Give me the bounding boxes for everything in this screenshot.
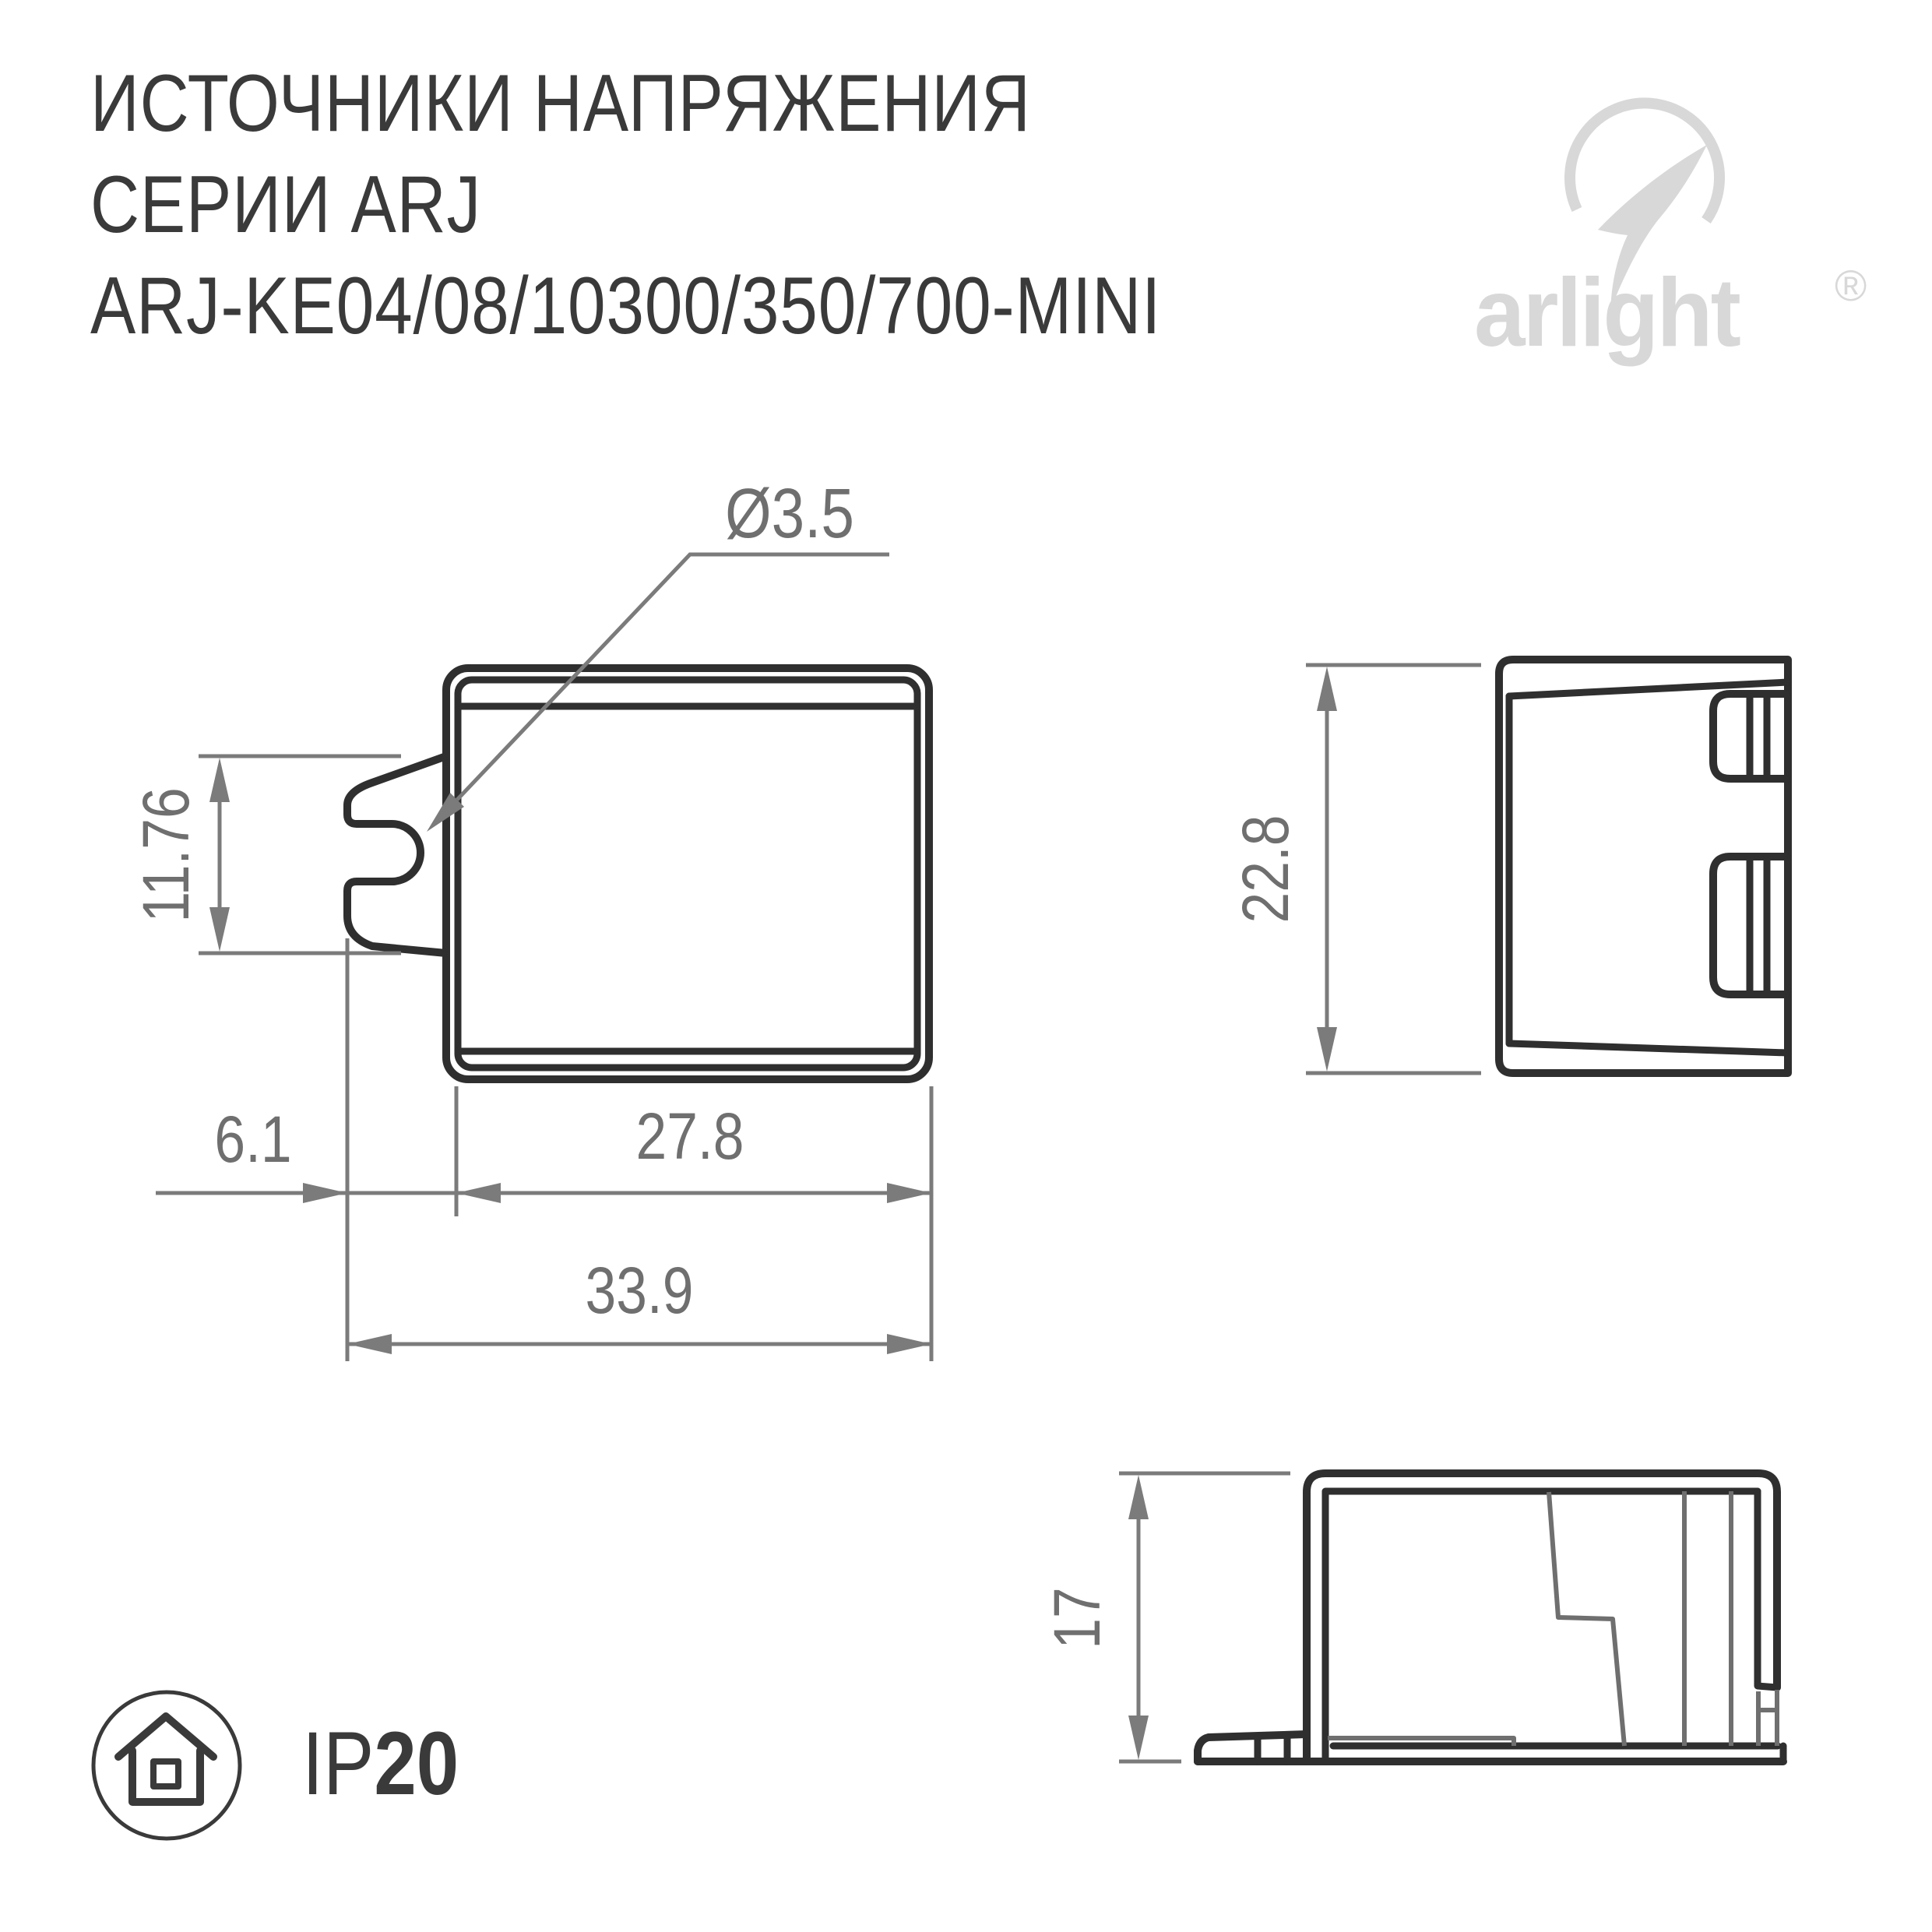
internal-step-line (1549, 1492, 1624, 1746)
arrowhead-left-icon (347, 1334, 392, 1354)
mounting-tab-contour (347, 756, 446, 953)
side-view (1499, 660, 1788, 1073)
dim-profile-height: 17 (1040, 1587, 1114, 1649)
side-bottom-seam (1509, 1043, 1788, 1053)
ip-prefix: IP (302, 1714, 374, 1814)
house-walls-icon (132, 1751, 200, 1802)
arrowhead-down-icon (1317, 1027, 1337, 1072)
dim-total-width: 33.9 (586, 1253, 694, 1327)
profile-outer-contour (1307, 1473, 1777, 1761)
dimension-side-height: 22.8 (1228, 665, 1481, 1073)
front-outer-contour (446, 668, 929, 1079)
dim-body-width: 27.8 (636, 1099, 744, 1173)
dimension-profile-height: 17 (1040, 1473, 1290, 1761)
ip-value: 20 (374, 1714, 459, 1814)
logo-wordmark: arlight (1474, 259, 1740, 366)
arrowhead-down-icon (209, 907, 230, 952)
dim-tab-height: 11.76 (128, 787, 202, 922)
ip-badge (93, 1692, 240, 1839)
profile-internal-details (1328, 1491, 1777, 1746)
dim-side-height: 22.8 (1228, 815, 1302, 924)
arlight-logo: arlight ® (1474, 103, 1867, 366)
datasheet-page: ИСТОЧНИКИ НАПРЯЖЕНИЯ СЕРИИ ARJ ARJ-KE04/… (0, 0, 1932, 1932)
front-inner-contour (458, 680, 917, 1068)
registered-trademark-icon: ® (1835, 261, 1867, 310)
dim-tab-width: 6.1 (214, 1102, 291, 1176)
technical-drawing: arlight ® Ø3.5 11.76 (0, 0, 1932, 1932)
arrowhead-down-icon (1128, 1716, 1149, 1760)
arrowhead-right-icon (887, 1334, 931, 1354)
hole-callout: Ø3.5 (427, 473, 889, 832)
dimension-widths: 6.1 27.8 (156, 938, 931, 1361)
profile-view (1198, 1473, 1783, 1761)
arrowhead-up-icon (1317, 667, 1337, 711)
arrowhead-up-icon (1128, 1475, 1149, 1519)
dim-hole-diameter: Ø3.5 (725, 473, 854, 552)
arrowhead-up-icon (209, 758, 230, 802)
front-view (347, 668, 929, 1079)
side-outer-contour (1499, 660, 1788, 1073)
ip-rating: IP20 (302, 1719, 459, 1809)
arrowhead-left-icon (456, 1183, 501, 1203)
profile-inner-contour (1325, 1491, 1758, 1761)
house-window-icon (153, 1761, 178, 1786)
arrowhead-right-icon (887, 1183, 931, 1203)
arrowhead-right-icon (303, 1183, 347, 1203)
dimension-total-width: 33.9 (347, 1253, 931, 1354)
